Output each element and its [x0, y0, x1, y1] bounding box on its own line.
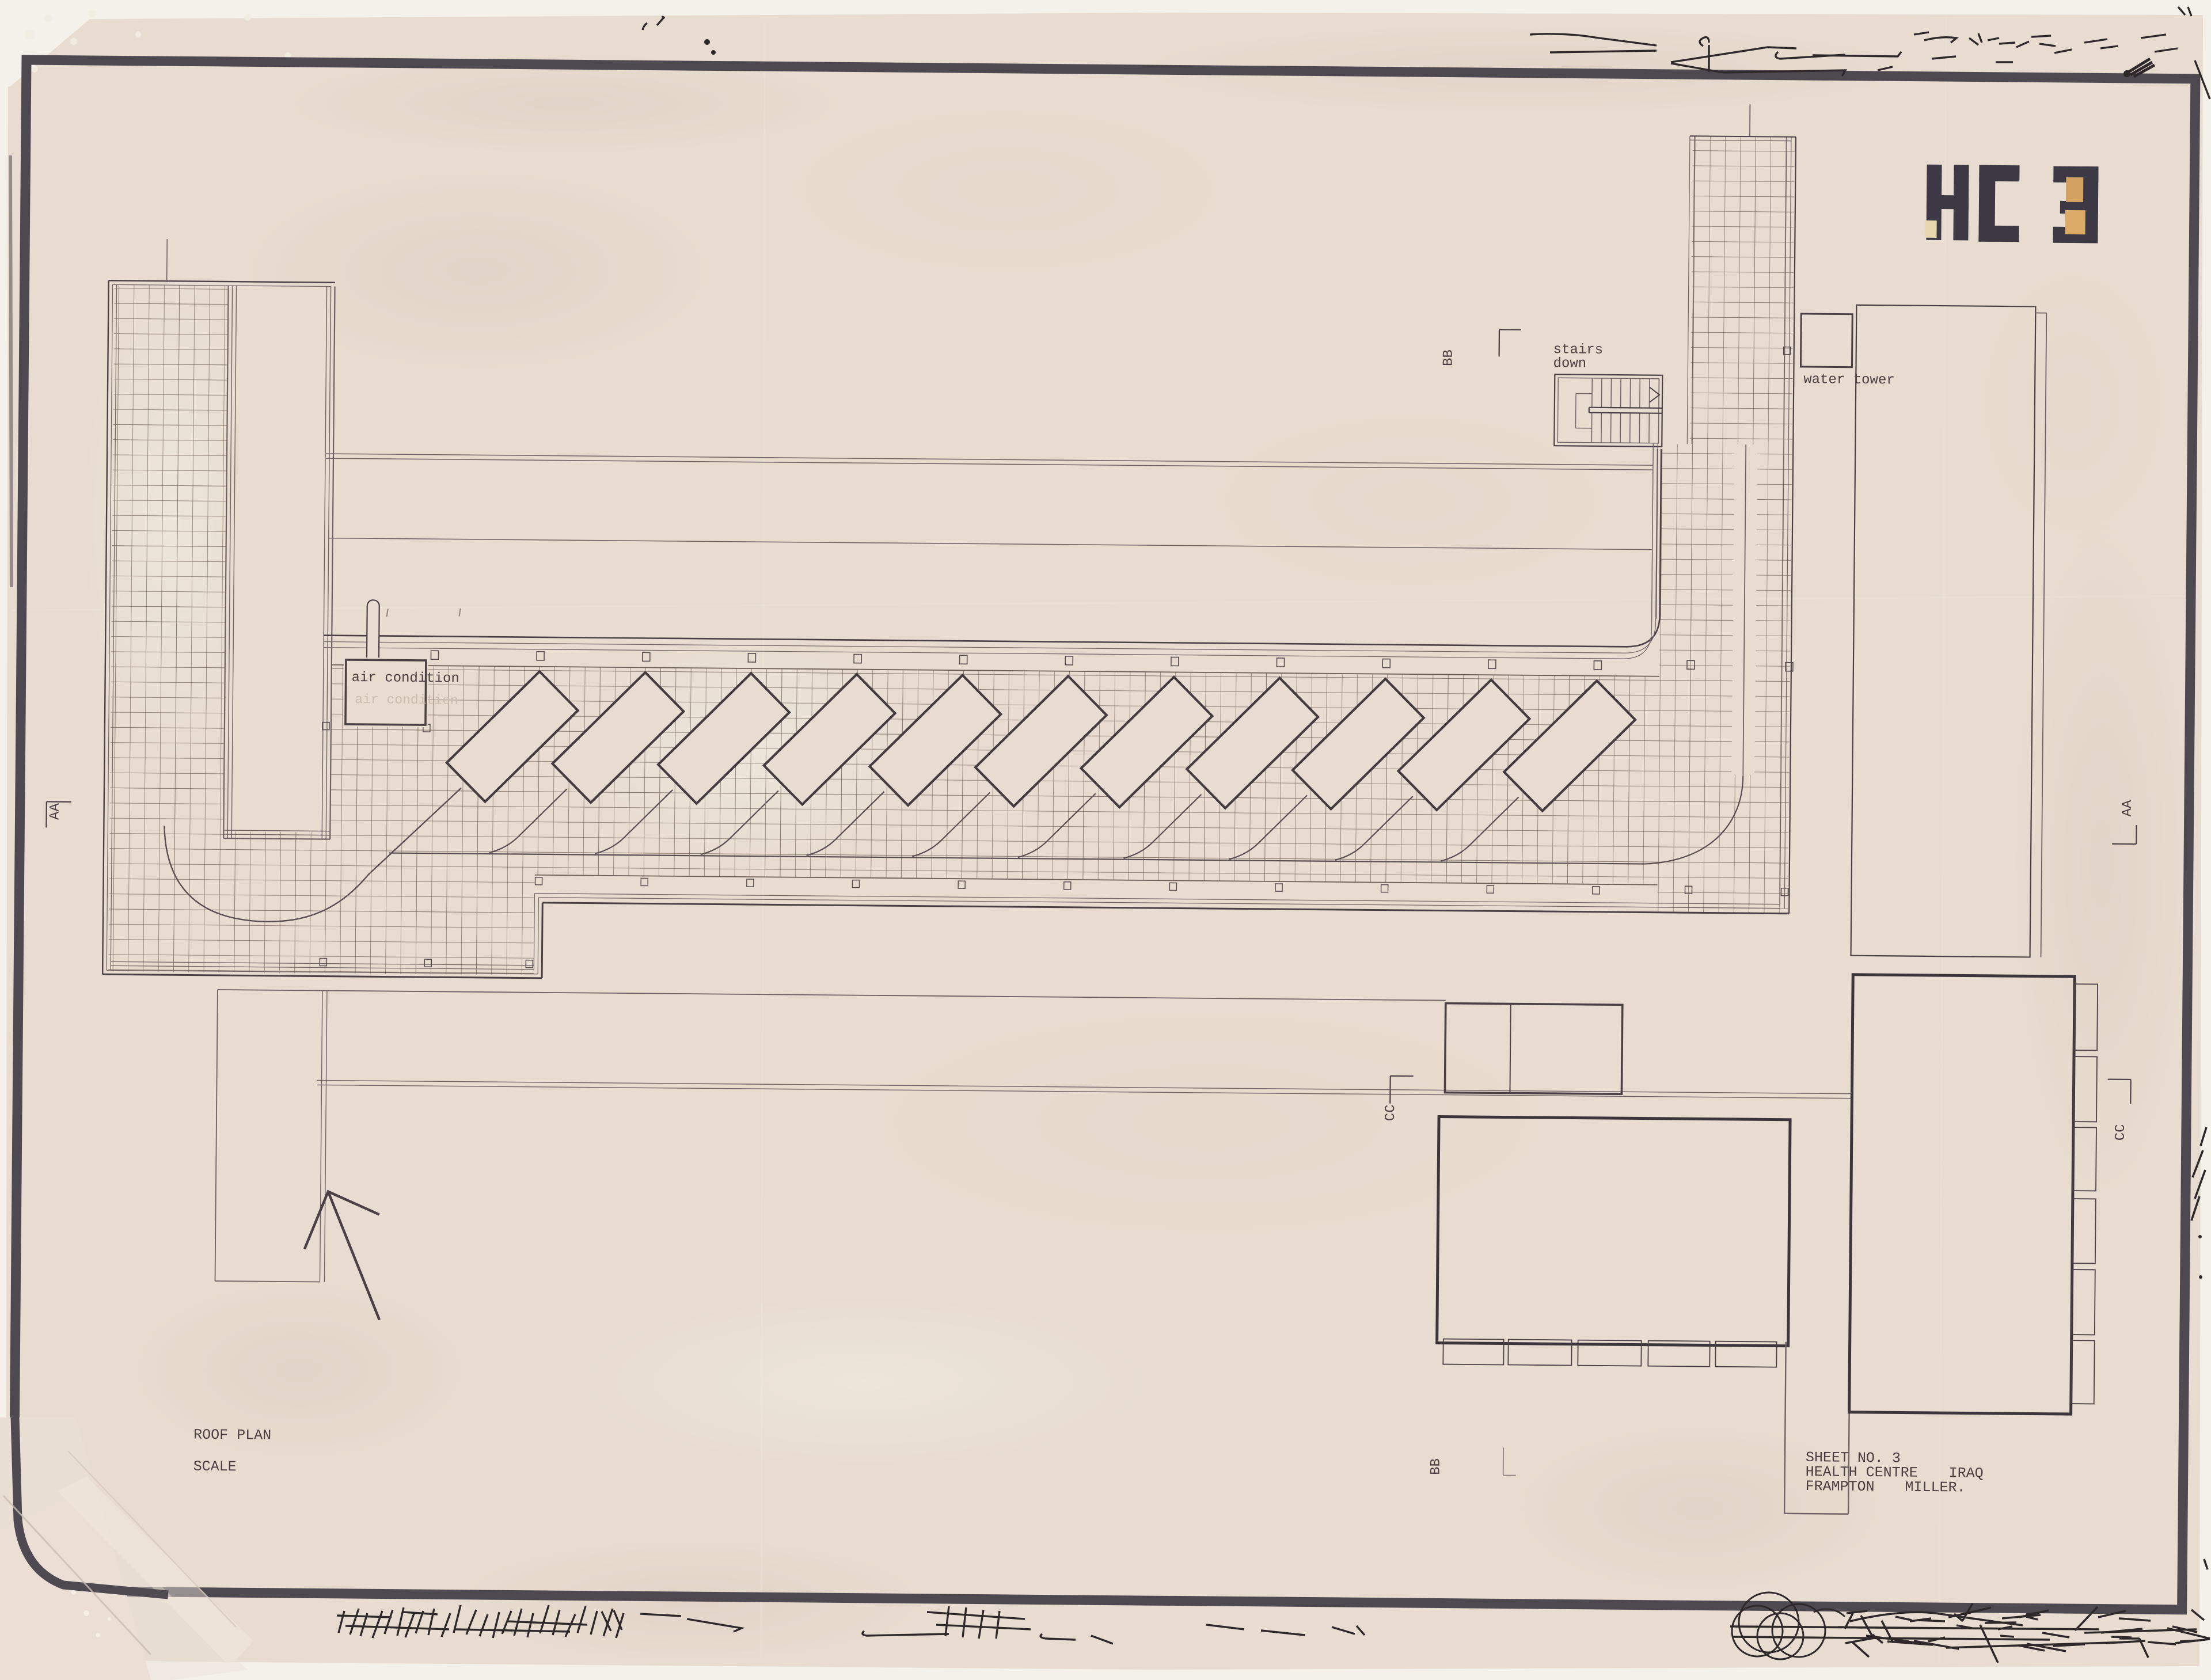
svg-text:BB: BB [1429, 1458, 1444, 1475]
svg-text:air condition: air condition [355, 692, 458, 708]
svg-text:air condition: air condition [352, 670, 459, 687]
svg-text:ROOF PLAN: ROOF PLAN [193, 1427, 271, 1444]
svg-text:MILLER.: MILLER. [1905, 1479, 1965, 1496]
svg-text:water tower: water tower [1803, 372, 1895, 388]
svg-text:FRAMPTON: FRAMPTON [1805, 1478, 1874, 1495]
svg-text:BB: BB [1441, 349, 1456, 366]
svg-text:CC: CC [1383, 1104, 1399, 1121]
svg-text:AA: AA [47, 803, 63, 820]
svg-text:SCALE: SCALE [193, 1458, 237, 1476]
svg-text:CC: CC [2113, 1124, 2129, 1141]
svg-text:AA: AA [2120, 800, 2136, 817]
svg-text:down: down [1553, 356, 1586, 372]
